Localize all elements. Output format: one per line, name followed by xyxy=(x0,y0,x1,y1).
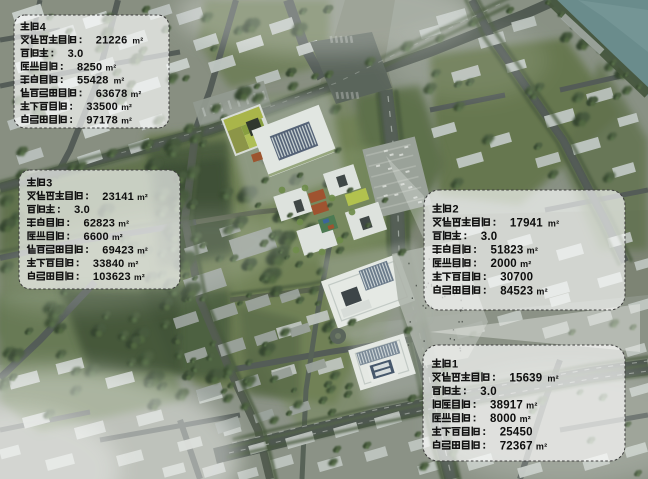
svg-text:15639m²: 15639m² xyxy=(509,372,558,384)
svg-text:51823m²: 51823m² xyxy=(491,245,539,257)
svg-text:1: 1 xyxy=(452,359,458,371)
svg-text:62823m²: 62823m² xyxy=(84,218,130,230)
svg-text:84523m²: 84523m² xyxy=(500,285,548,297)
svg-text:55428m²: 55428m² xyxy=(77,75,125,87)
svg-text:38917m²: 38917m² xyxy=(490,400,538,412)
svg-text:33840m²: 33840m² xyxy=(93,258,139,270)
svg-text:2000m²: 2000m² xyxy=(491,258,532,270)
svg-text:30700: 30700 xyxy=(500,272,533,284)
svg-text:23141m²: 23141m² xyxy=(102,191,148,203)
svg-text:8000m²: 8000m² xyxy=(490,413,531,425)
svg-text:3.0: 3.0 xyxy=(481,231,498,243)
svg-text:25450: 25450 xyxy=(500,427,533,439)
svg-text:21226m²: 21226m² xyxy=(96,35,144,47)
svg-text:8250m²: 8250m² xyxy=(77,61,116,73)
svg-text:69423m²: 69423m² xyxy=(102,244,148,256)
svg-text:33500m²: 33500m² xyxy=(86,101,132,113)
svg-text:2: 2 xyxy=(452,204,458,216)
svg-text:63678m²: 63678m² xyxy=(96,88,142,100)
svg-text:4: 4 xyxy=(40,21,46,33)
svg-text:3: 3 xyxy=(46,177,52,189)
svg-text:3.0: 3.0 xyxy=(74,204,90,216)
svg-text:3.0: 3.0 xyxy=(480,386,497,398)
svg-text:6600m²: 6600m² xyxy=(84,231,123,243)
svg-text:103623m²: 103623m² xyxy=(93,271,145,283)
svg-text:72367m²: 72367m² xyxy=(500,440,548,452)
svg-text:3.0: 3.0 xyxy=(68,48,84,60)
svg-text:17941m²: 17941m² xyxy=(510,217,559,229)
svg-text:97178m²: 97178m² xyxy=(86,115,132,127)
